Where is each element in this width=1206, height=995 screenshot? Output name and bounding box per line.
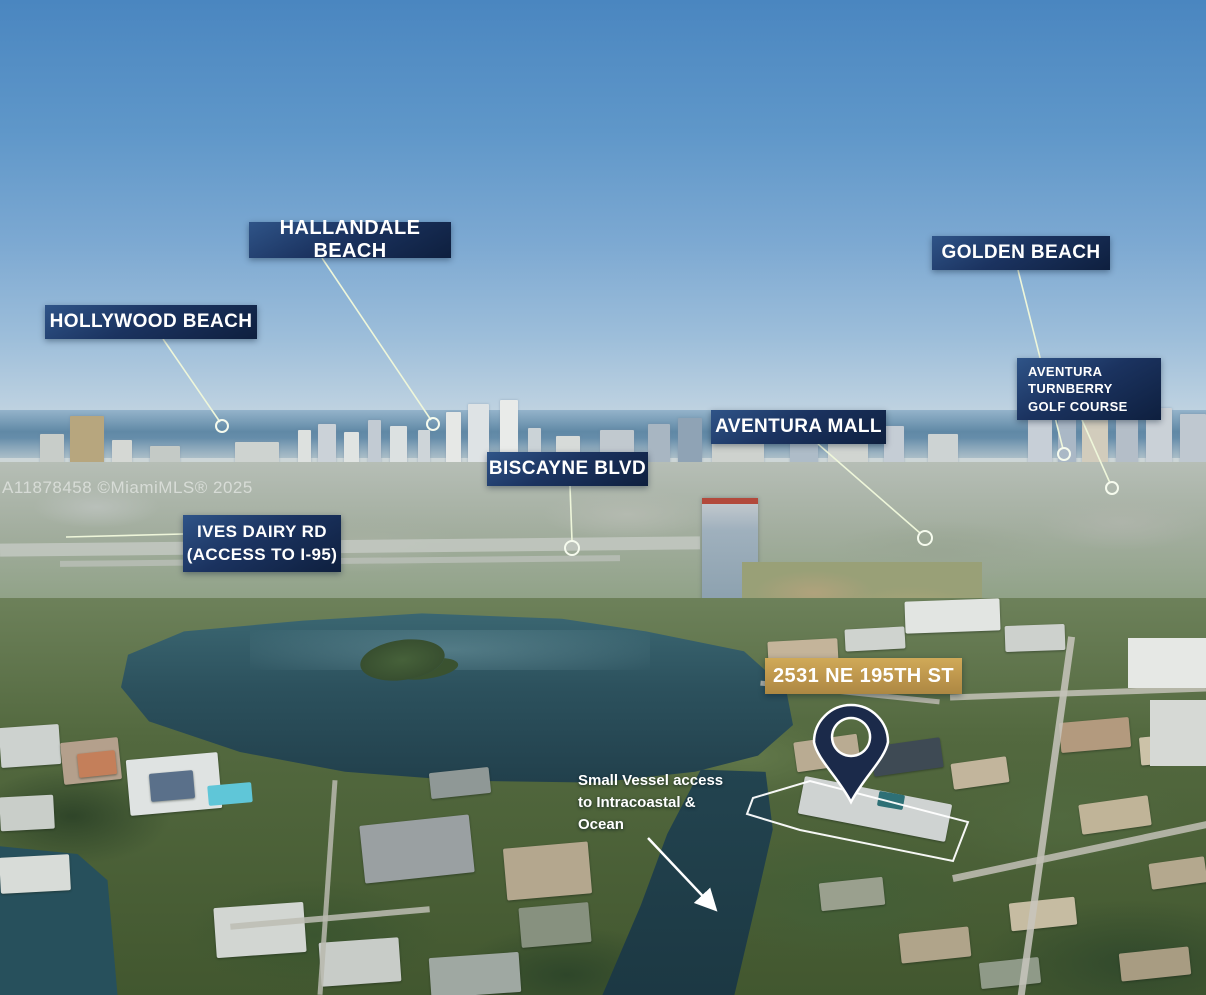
- house-roof: [359, 814, 474, 883]
- tower-building: [446, 412, 461, 465]
- aerial-photo-scene: HALLANDALE BEACH HOLLYWOOD BEACH GOLDEN …: [0, 0, 1206, 995]
- callout-ives-dairy-rd: IVES DAIRY RD (ACCESS TO I-95): [183, 515, 341, 572]
- tower-building: [390, 426, 407, 465]
- house-roof: [213, 902, 306, 958]
- lake-reflection: [250, 630, 650, 670]
- tower-building: [1180, 414, 1206, 464]
- warehouse-roof: [1128, 638, 1206, 688]
- tower-building: [648, 424, 670, 466]
- house-roof: [1059, 717, 1131, 753]
- tower-building: [368, 420, 381, 465]
- house-roof: [0, 724, 61, 768]
- house-roof: [319, 937, 402, 986]
- warehouse-roof: [1150, 700, 1206, 766]
- tower-building: [678, 418, 702, 466]
- callout-hollywood-beach: HOLLYWOOD BEACH: [45, 305, 257, 339]
- tower-building: [70, 416, 104, 464]
- callout-golden-beach: GOLDEN BEACH: [932, 236, 1110, 270]
- tower-building: [112, 440, 132, 464]
- house-roof: [0, 795, 55, 832]
- tower-building: [40, 434, 64, 464]
- house-roof: [0, 854, 71, 894]
- callout-hallandale-beach: HALLANDALE BEACH: [249, 222, 451, 258]
- house-roof: [844, 626, 905, 651]
- house-roof: [77, 750, 117, 778]
- house-roof: [904, 598, 1000, 633]
- house-roof: [429, 952, 522, 995]
- tower-building: [468, 404, 489, 465]
- vessel-access-note: Small Vessel access to Intracoastal & Oc…: [578, 770, 738, 835]
- mls-watermark: A11878458 ©MiamiMLS® 2025: [2, 478, 253, 498]
- house-roof: [518, 902, 591, 948]
- tower-building: [928, 434, 958, 464]
- callout-biscayne-blvd: BISCAYNE BLVD: [487, 452, 648, 486]
- tower-building: [318, 424, 336, 464]
- callout-aventura-turnberry-golf-course: AVENTURA TURNBERRY GOLF COURSE: [1017, 358, 1161, 420]
- callout-aventura-mall: AVENTURA MALL: [711, 410, 886, 444]
- house-roof: [1005, 624, 1066, 652]
- callout-property-address: 2531 NE 195TH ST: [765, 658, 962, 694]
- tower-building: [418, 430, 430, 465]
- swimming-pool: [207, 782, 253, 806]
- house-roof: [503, 841, 592, 900]
- house-roof: [149, 770, 195, 802]
- tower-building: [298, 430, 311, 464]
- tower-building: [344, 432, 359, 465]
- tower-building: [235, 442, 279, 464]
